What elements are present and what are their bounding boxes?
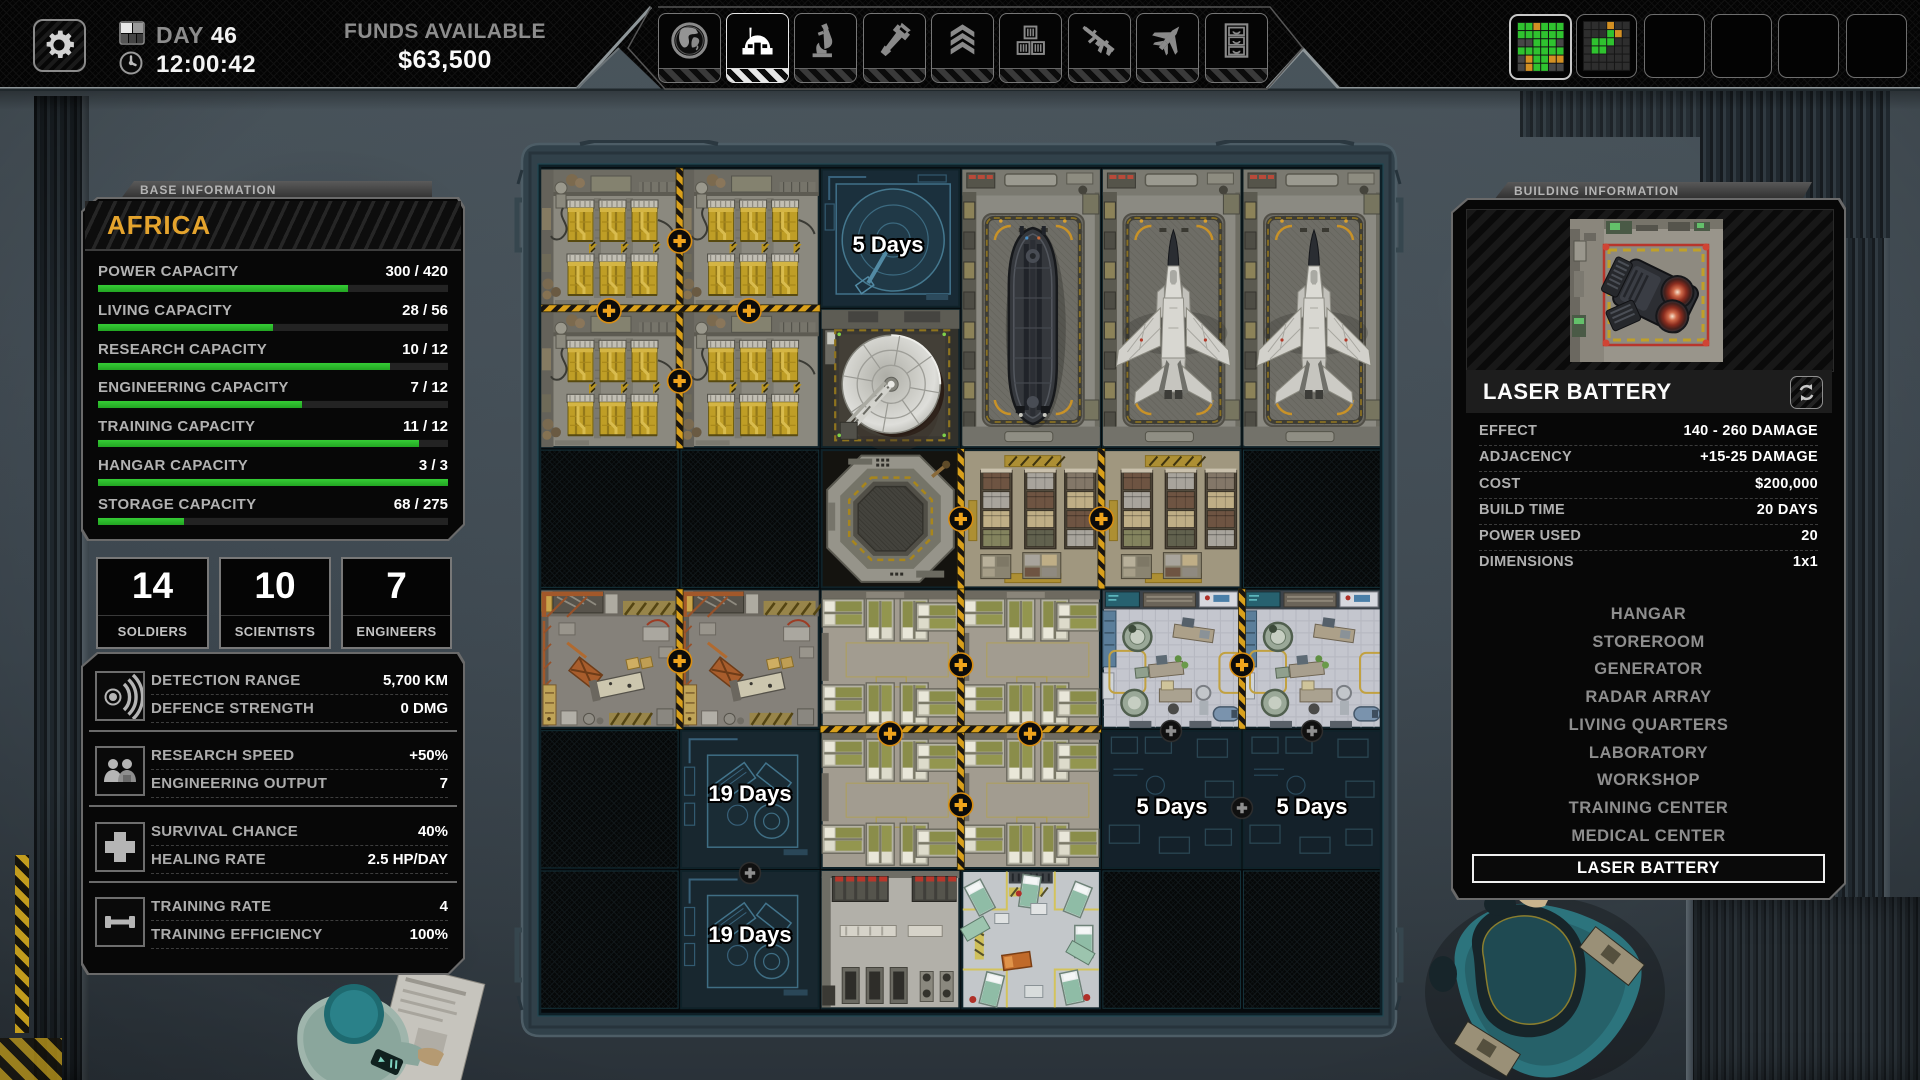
svg-text:19 Days: 19 Days xyxy=(708,781,791,806)
svg-text:19 Days: 19 Days xyxy=(708,922,791,947)
svg-text:5 Days: 5 Days xyxy=(1137,794,1208,819)
svg-text:5 Days: 5 Days xyxy=(1277,794,1348,819)
svg-text:5 Days: 5 Days xyxy=(853,232,924,257)
